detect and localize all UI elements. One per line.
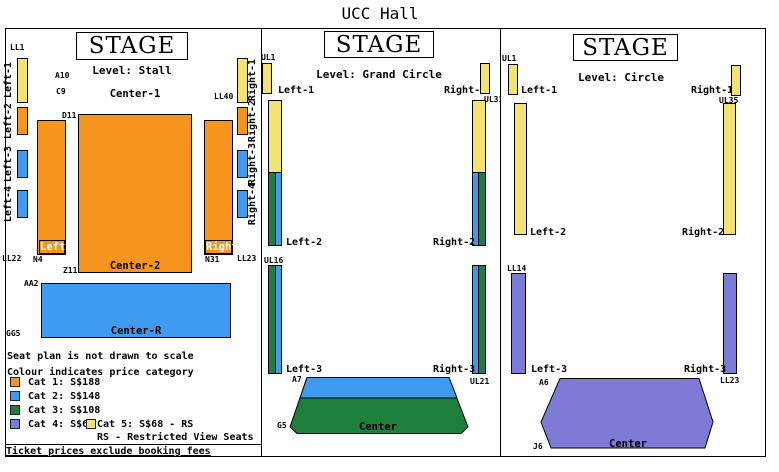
circle-left-3-block <box>511 273 526 374</box>
circle-left-3-label: Left-3 <box>531 364 567 375</box>
stall-seat-label-c9: C9 <box>56 87 66 96</box>
circle-right-1-block <box>731 65 741 96</box>
stall-seat-label-aa2: AA2 <box>24 279 38 288</box>
circle-right-3-label: Right-3 <box>684 364 726 375</box>
stall-left-4-block <box>17 190 28 218</box>
stall-seat-label-d11: D11 <box>62 111 76 120</box>
gc-left-3-cat2-block <box>275 265 282 374</box>
gc-left-1-label: Left-1 <box>278 85 314 96</box>
gc-seat-label-ul1: UL1 <box>261 53 275 62</box>
circle-right-2-block <box>723 103 736 235</box>
stall-seat-label-z11: Z11 <box>63 266 77 275</box>
stall-seat-label-a10: A10 <box>55 71 69 80</box>
hall-title: UCC Hall <box>300 4 460 23</box>
footer-divider <box>5 444 262 445</box>
legend-scale-note: Seat plan is not drawn to scale <box>7 351 194 362</box>
stall-left-3-block <box>17 150 28 178</box>
circle-left-1-block <box>508 64 518 95</box>
circle-right-2-label: Right-2 <box>682 227 724 238</box>
stall-center-2-block <box>78 114 192 273</box>
stall-seat-label-ll23: LL23 <box>237 254 256 263</box>
legend-cat3-label: Cat 3: S$108 <box>28 405 100 416</box>
legend-cat5-label: Cat 5: S$68 - RS <box>97 419 193 430</box>
circle-left-2-block <box>514 103 527 235</box>
stall-right-section-block <box>204 120 233 255</box>
stall-left-section-block <box>37 120 66 255</box>
gc-seat-label-g5: G5 <box>277 421 287 430</box>
legend-cat2-swatch <box>10 391 20 401</box>
stall-level-label: Level: Stall <box>57 64 207 77</box>
stall-seat-label-ll22: LL22 <box>2 254 21 263</box>
stall-right-4-label: Right-4 <box>247 174 259 234</box>
legend-cat4-swatch <box>10 419 20 429</box>
stall-center-r-label: Center-R <box>41 325 231 337</box>
gc-left-2-rs-block <box>268 100 282 173</box>
circle-seat-label-ll23: LL23 <box>720 376 739 385</box>
gc-left-3-label: Left-3 <box>286 364 322 375</box>
seat-plan: UCC Hall STAGE Level: Stall LL1 Left-1 L… <box>0 0 779 472</box>
stall-center-1-label: Center-1 <box>78 88 192 100</box>
legend-cat3-swatch <box>10 405 20 415</box>
gc-seat-label-ul21: UL21 <box>470 377 489 386</box>
gc-right-2-label: Right-2 <box>433 237 475 248</box>
circle-seat-label-ll14: LL14 <box>507 264 526 273</box>
gc-left-2-label: Left-2 <box>286 237 322 248</box>
legend-cat2-label: Cat 2: S$148 <box>28 391 100 402</box>
legend-cat4-label: Cat 4: S$68 <box>28 419 94 430</box>
legend-cat5-swatch <box>86 419 96 429</box>
gc-right-2-rs-block <box>472 100 486 173</box>
stall-left-section-tag: Left <box>39 240 65 254</box>
gc-right-3-label: Right-3 <box>433 364 475 375</box>
legend-cat1-swatch <box>10 377 20 387</box>
gc-right-2-cat3-block <box>478 172 486 246</box>
circle-right-3-block <box>723 273 737 374</box>
stall-seat-label-n31: N31 <box>205 255 219 264</box>
legend-rs-note: RS - Restricted View Seats <box>97 432 254 443</box>
stall-left-1-block <box>17 58 28 103</box>
grand-circle-stage-box: STAGE <box>324 31 434 58</box>
gc-center-label: Center <box>348 421 408 433</box>
circle-right-1-label: Right-1 <box>691 85 733 96</box>
gc-right-3-cat3-block <box>478 265 486 374</box>
stall-left-4-label: Left-4 <box>3 174 15 234</box>
stall-seat-label-ll40: LL40 <box>214 92 233 101</box>
stall-right-section-tag: Right <box>205 240 232 254</box>
circle-left-2-label: Left-2 <box>530 227 566 238</box>
stall-seat-label-gg5: GG5 <box>6 329 20 338</box>
stall-stage-box: STAGE <box>76 32 188 60</box>
stall-center-2-label: Center-2 <box>78 260 192 272</box>
circle-left-1-label: Left-1 <box>521 85 557 96</box>
legend-cat1-label: Cat 1: S$188 <box>28 377 100 388</box>
stall-seat-label-n4: N4 <box>33 255 43 264</box>
gc-seat-label-ul16: UL16 <box>264 256 283 265</box>
circle-stage-box: STAGE <box>573 34 678 61</box>
footer-note: Ticket prices exclude booking fees <box>6 446 211 457</box>
circle-seat-label-ul1: UL1 <box>502 54 516 63</box>
gc-left-2-cat2-block <box>275 172 282 246</box>
gc-right-1-block <box>480 63 490 94</box>
grand-circle-level-label: Level: Grand Circle <box>296 68 462 81</box>
circle-center-label: Center <box>598 438 658 450</box>
gc-left-1-block <box>262 63 272 94</box>
stall-left-2-block <box>17 107 28 135</box>
circle-level-label: Level: Circle <box>571 71 671 84</box>
